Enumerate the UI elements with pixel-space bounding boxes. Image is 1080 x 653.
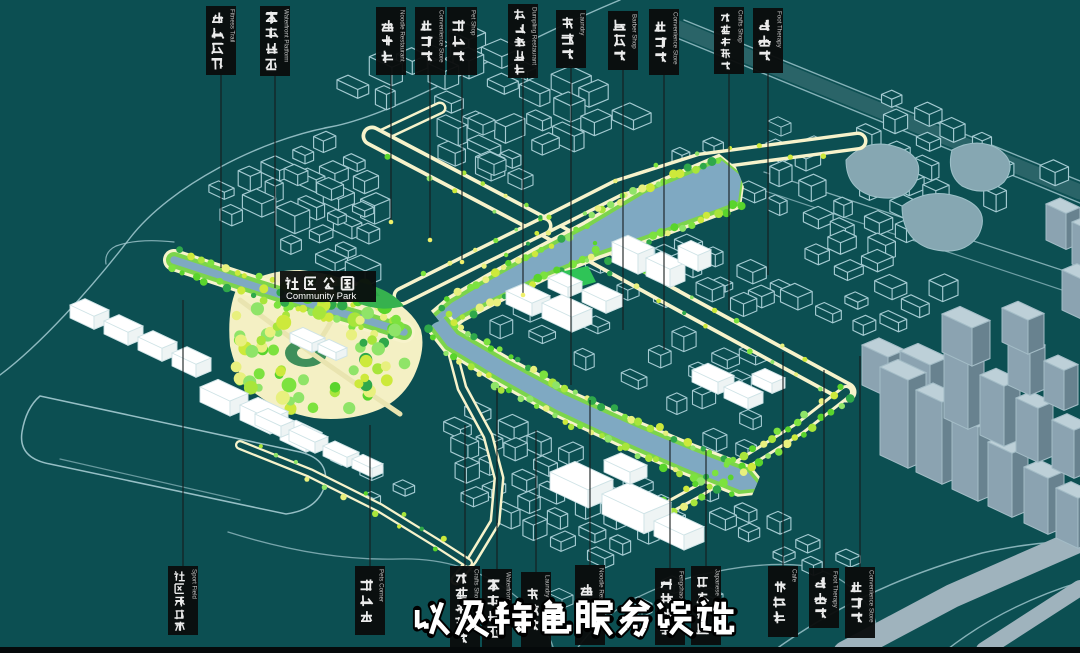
svg-text:Dumpling Restaurant: Dumpling Restaurant bbox=[531, 7, 538, 65]
svg-text:Foot Therapy: Foot Therapy bbox=[776, 11, 783, 49]
svg-text:Waterfront: Waterfront bbox=[505, 572, 512, 601]
svg-text:Crafts Shop: Crafts Shop bbox=[737, 10, 744, 43]
svg-text:Sport Field: Sport Field bbox=[191, 569, 198, 599]
svg-text:Waterfront Platform: Waterfront Platform bbox=[283, 9, 290, 62]
svg-text:Fitness Trail: Fitness Trail bbox=[229, 9, 236, 42]
svg-text:Cafe: Cafe bbox=[791, 569, 798, 583]
svg-text:Convenience Store: Convenience Store bbox=[438, 10, 445, 63]
svg-text:Noodle Restaurant: Noodle Restaurant bbox=[399, 10, 406, 62]
svg-text:Laundry: Laundry bbox=[579, 13, 586, 36]
svg-text:Japanese: Japanese bbox=[714, 569, 721, 596]
svg-text:Pets Corner: Pets Corner bbox=[378, 569, 385, 602]
svg-text:Community Park: Community Park bbox=[286, 291, 356, 302]
svg-text:Pet Shop: Pet Shop bbox=[470, 10, 477, 36]
svg-text:Barber Shop: Barber Shop bbox=[631, 14, 638, 49]
svg-text:Foot Therapy: Foot Therapy bbox=[832, 571, 839, 609]
svg-text:Fengchao: Fengchao bbox=[678, 571, 685, 599]
svg-text:Convenience Store: Convenience Store bbox=[672, 12, 679, 65]
svg-text:Convenience Store: Convenience Store bbox=[868, 570, 875, 623]
svg-text:Crafts Shop: Crafts Shop bbox=[473, 569, 480, 602]
svg-text:Laundry: Laundry bbox=[544, 575, 551, 598]
